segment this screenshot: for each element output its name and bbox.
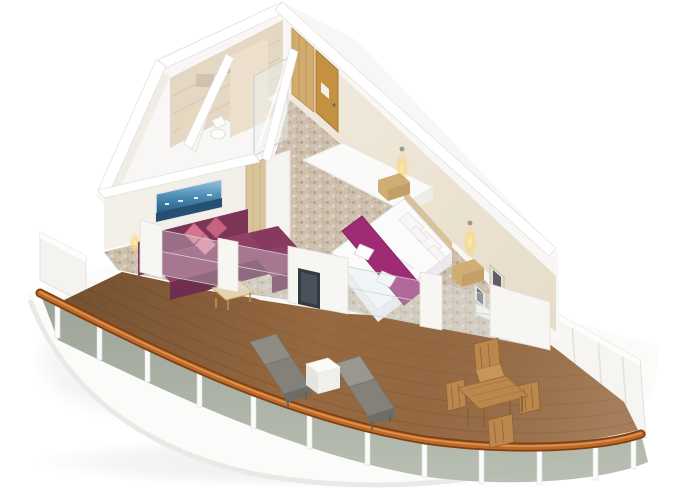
sconce-right-bracket [468, 221, 473, 226]
tv-panel [298, 268, 320, 309]
facade-pier-1 [140, 220, 162, 278]
balcony-side-table [306, 358, 340, 394]
dining-chair-front [488, 414, 514, 448]
wall-sconce-right [463, 225, 477, 259]
facade-pier-2 [218, 238, 238, 292]
sconce-left-bracket [400, 147, 405, 152]
door-handle [332, 103, 335, 106]
suite-3d-render [0, 0, 680, 491]
tv-screen [301, 272, 317, 305]
suite-floorplan-svg [0, 0, 680, 491]
facade-pier-4 [420, 272, 442, 330]
dining-chair-left [446, 379, 466, 411]
